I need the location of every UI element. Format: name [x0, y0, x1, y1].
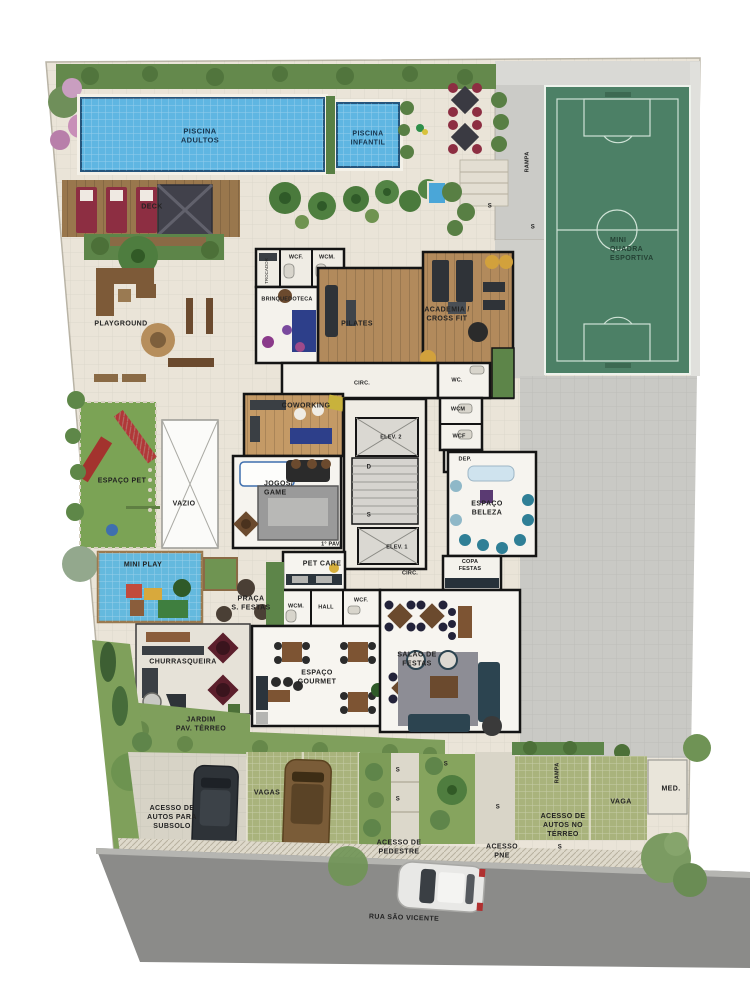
bbq-area	[136, 624, 250, 714]
plaza-gray-texture	[520, 376, 697, 758]
street-car	[397, 861, 486, 913]
gazebo	[158, 185, 212, 235]
salao-lounge	[398, 650, 502, 736]
sports-court	[545, 86, 690, 374]
street-tree	[328, 846, 368, 886]
plan-drawing	[0, 0, 750, 1000]
parking-terreo	[515, 756, 647, 840]
med-room	[648, 760, 687, 814]
pedestrian-path	[391, 753, 419, 841]
site-plan: PISCINA ADULTOS PISCINA INFANTIL DECK RA…	[0, 0, 750, 1000]
deck-area	[62, 180, 240, 237]
court-side-strip	[690, 62, 700, 376]
parking-vagas	[247, 752, 359, 853]
pet-area	[77, 402, 160, 548]
pool-hedge-strip	[326, 96, 335, 174]
paver-path-pne	[475, 752, 515, 844]
kids-pool	[333, 99, 403, 171]
tree	[62, 546, 98, 582]
planter-right	[492, 348, 514, 398]
hall-hedge	[266, 562, 284, 632]
adult-pool	[77, 94, 328, 175]
parking-garden-2	[419, 754, 475, 844]
mini-play-area	[98, 552, 202, 622]
sidewalk-top-right	[495, 61, 700, 85]
room-hall	[281, 590, 380, 626]
vazio-shaft	[162, 420, 218, 548]
